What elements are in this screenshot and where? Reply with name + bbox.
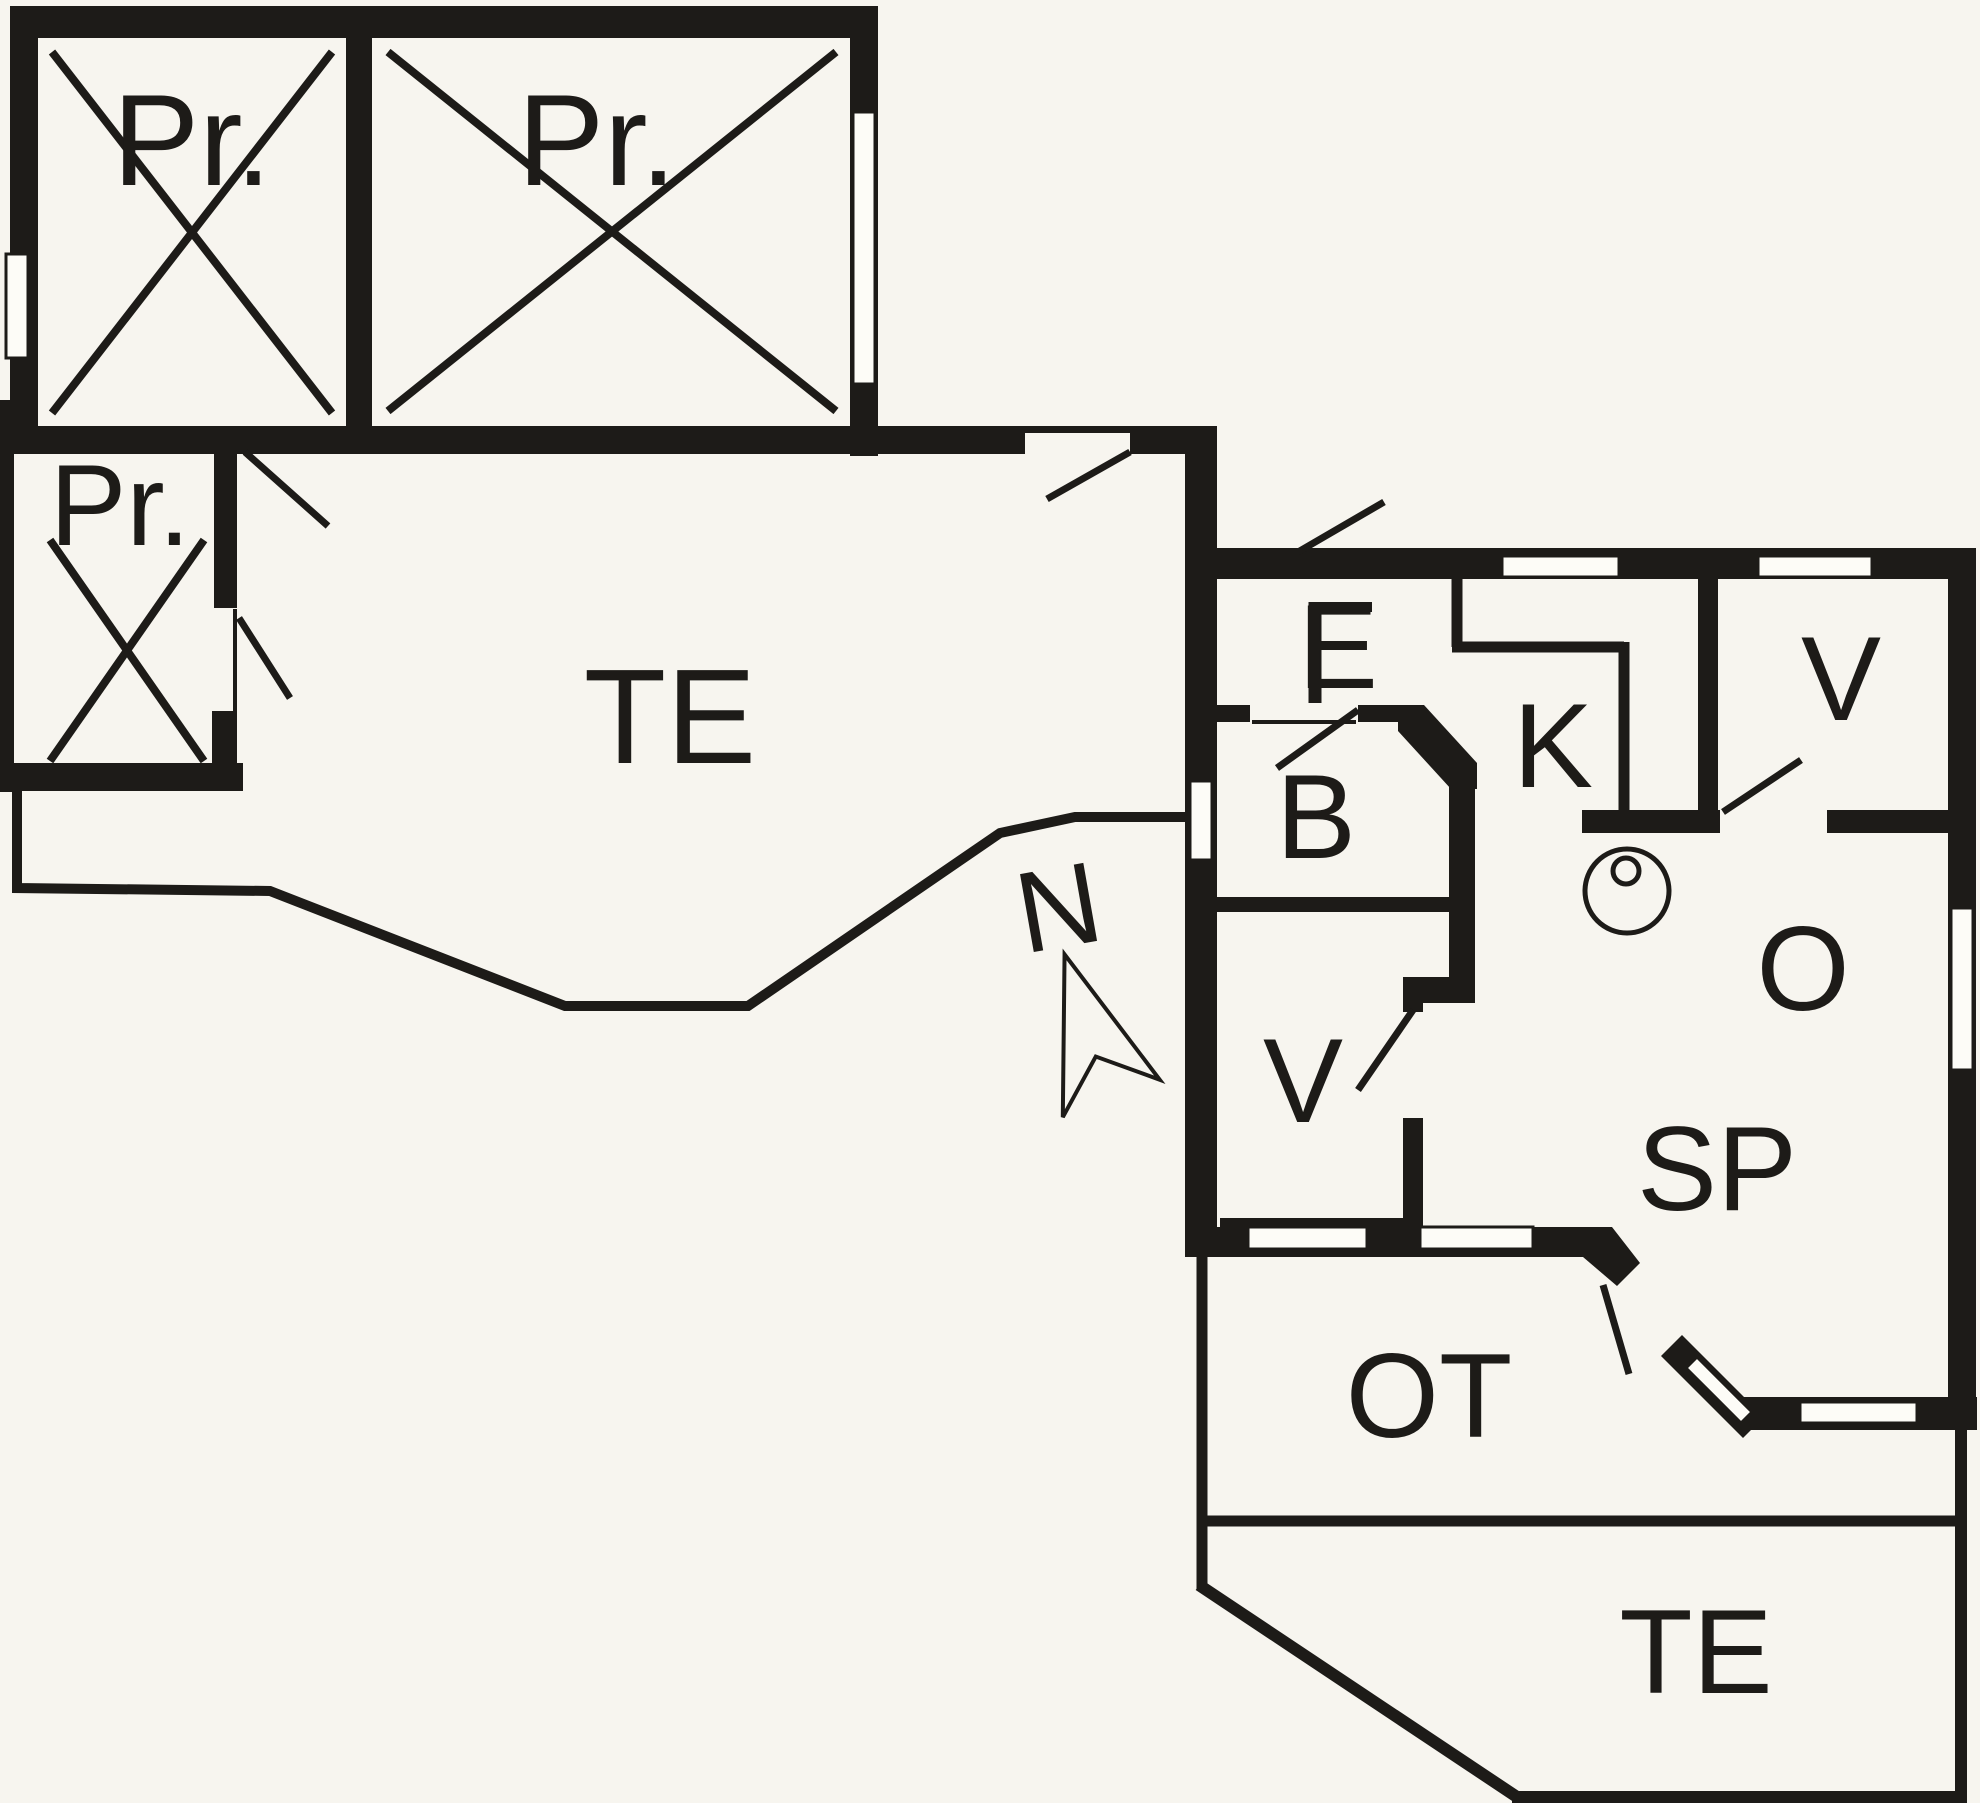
room-label-entrance: E xyxy=(1298,580,1378,714)
room-label-pr-shed-3: Pr. xyxy=(50,442,191,570)
window xyxy=(1951,908,1973,1070)
window xyxy=(1758,556,1872,577)
wall-segment xyxy=(10,6,878,38)
room-label-dining: SP xyxy=(1637,1102,1797,1236)
wall-segment xyxy=(1827,810,1948,833)
wall-segment xyxy=(1403,977,1475,1003)
room-label-pr-shed-1: Pr. xyxy=(113,67,272,213)
wall-segment xyxy=(212,711,237,763)
wall-segment xyxy=(0,400,14,792)
floor-plan-canvas: N Pr. Pr. Pr. TE E K V B O V SP OT TE xyxy=(0,0,1980,1803)
room-label-pr-shed-2: Pr. xyxy=(518,67,677,213)
room-label-bedroom-north: V xyxy=(1801,612,1881,746)
window xyxy=(1502,556,1619,577)
room-label-bedroom-west: V xyxy=(1263,1014,1343,1148)
window xyxy=(1248,1227,1367,1249)
wall-segment xyxy=(1403,1118,1423,1227)
wall-segment xyxy=(10,6,38,430)
wall-segment xyxy=(1217,897,1475,912)
window xyxy=(6,254,28,358)
floor-plan-drawing: N Pr. Pr. Pr. TE E K V B O V SP OT TE xyxy=(0,0,1980,1803)
wall-segment xyxy=(214,448,237,608)
wall-segment xyxy=(1449,763,1475,912)
wall-segment xyxy=(1025,426,1130,433)
room-label-bathroom: B xyxy=(1276,750,1356,884)
window xyxy=(1190,781,1212,860)
window xyxy=(1800,1402,1917,1423)
window xyxy=(853,112,875,384)
wall-segment xyxy=(1698,579,1718,813)
room-label-kitchen: K xyxy=(1513,679,1593,813)
wall-segment xyxy=(346,38,372,428)
room-label-covered-terrace: OT xyxy=(1346,1329,1513,1463)
room-label-terrace-main: TE xyxy=(584,641,757,792)
wall-segment xyxy=(0,763,243,791)
room-label-terrace-south: TE xyxy=(1619,1585,1772,1719)
window xyxy=(1420,1227,1533,1249)
wall-segment xyxy=(1217,705,1250,722)
room-label-living-room: O xyxy=(1756,902,1849,1036)
wall-segment xyxy=(1582,810,1720,833)
wall-segment xyxy=(1449,912,1475,978)
